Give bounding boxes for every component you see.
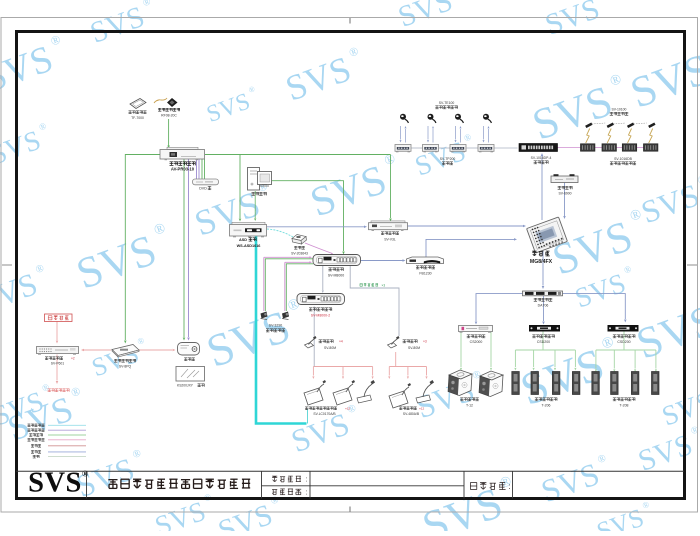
- svg-text:DVD: DVD: [199, 187, 207, 191]
- svg-text:®: ®: [82, 469, 89, 479]
- svg-text:×12: ×12: [419, 406, 425, 410]
- svg-text:SV-8PQ: SV-8PQ: [119, 365, 132, 369]
- svg-text:×3: ×3: [382, 283, 386, 287]
- svg-text:SV-480A/B: SV-480A/B: [403, 412, 420, 416]
- svg-text:SVS: SVS: [28, 468, 82, 499]
- svg-text:×3: ×3: [423, 340, 427, 344]
- svg-text:KS200JXY: KS200JXY: [177, 384, 194, 388]
- svg-text:SV-3290: SV-3290: [269, 324, 282, 328]
- svg-text:SV-TP200: SV-TP200: [440, 157, 456, 161]
- svg-text:CSD200: CSD200: [617, 340, 630, 344]
- svg-text:SV-M8000-2: SV-M8000-2: [311, 314, 331, 318]
- svg-text:RF08-20C: RF08-20C: [161, 114, 177, 118]
- svg-text:CS2000: CS2000: [470, 340, 483, 344]
- svg-text:SV-LC0170A/B: SV-LC0170A/B: [313, 412, 336, 416]
- svg-text:T-208: T-208: [620, 404, 629, 408]
- svg-text:T-206: T-206: [542, 404, 551, 408]
- svg-text:×4: ×4: [339, 340, 343, 344]
- svg-text:×12: ×12: [345, 406, 351, 410]
- svg-text::: :: [508, 482, 510, 491]
- svg-text:AV-PR03-10: AV-PR03-10: [171, 167, 195, 172]
- svg-text:×2: ×2: [71, 357, 75, 361]
- svg-text:SV-10100: SV-10100: [612, 108, 627, 112]
- svg-text:FB1230: FB1230: [419, 272, 431, 276]
- svg-text:MG8/4FX: MG8/4FX: [530, 259, 553, 265]
- svg-text:WS-ASD1616: WS-ASD1616: [237, 244, 261, 248]
- svg-text:SV-P601: SV-P601: [51, 362, 64, 366]
- svg-text:SV-1016DP-4: SV-1016DP-4: [531, 156, 552, 160]
- svg-text:T-12: T-12: [466, 404, 473, 408]
- svg-text:SV-1016DB: SV-1016DB: [614, 157, 632, 161]
- svg-text:DA706: DA706: [538, 304, 549, 308]
- svg-text:SV-6900: SV-6900: [558, 192, 571, 196]
- svg-text:SV-M8000: SV-M8000: [328, 274, 344, 278]
- svg-text:TF-7000: TF-7000: [131, 116, 144, 120]
- svg-text::: :: [306, 489, 308, 496]
- svg-text::: :: [306, 477, 308, 484]
- svg-text:CSD200: CSD200: [537, 340, 550, 344]
- svg-text:SV-203643: SV-203643: [291, 252, 308, 256]
- svg-text:SV-V3L: SV-V3L: [384, 238, 396, 242]
- svg-text:SV-80M: SV-80M: [408, 346, 420, 350]
- svg-text:ASD: ASD: [239, 238, 247, 242]
- svg-text:SV-TE100: SV-TE100: [439, 101, 455, 105]
- svg-text:SV-80M: SV-80M: [324, 346, 336, 350]
